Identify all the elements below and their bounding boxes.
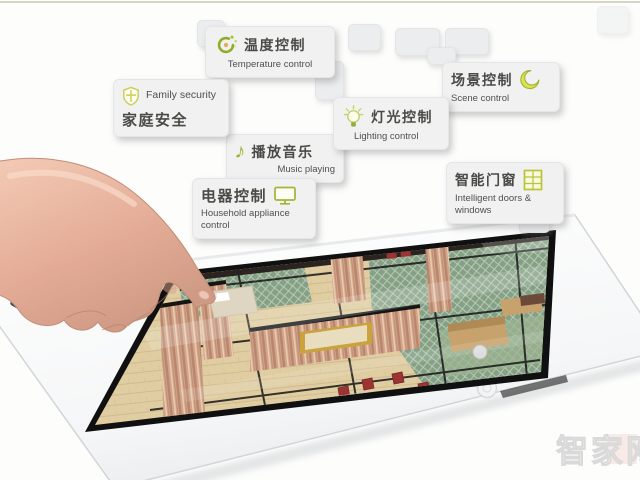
card-temperature-control[interactable]: 温度控制 Temperature control (205, 26, 335, 78)
card-scene-zh: 场景控制 (451, 70, 513, 90)
card-lighting-en: Lighting control (354, 131, 440, 143)
card-scene-en: Scene control (451, 93, 551, 105)
card-family-en: Family security (146, 89, 216, 102)
card-family-zh: 家庭安全 (122, 109, 220, 130)
light-bulb-icon (342, 104, 365, 129)
card-lighting-control[interactable]: 灯光控制 Lighting control (333, 97, 449, 150)
moon-icon (519, 69, 541, 91)
card-household-appliance-control[interactable]: 电器控制 Household appliance control (192, 178, 316, 239)
card-scene-row: 场景控制 (451, 69, 551, 91)
placeholder-card (348, 24, 381, 51)
window-icon (523, 169, 543, 191)
card-appliance-en: Household appliance control (201, 208, 307, 232)
card-music-en: Music playing (235, 164, 335, 176)
card-temperature-row: 温度控制 (214, 33, 326, 57)
card-music-row: ♪ 播放音乐 (235, 141, 335, 162)
card-intelligent-doors-windows[interactable]: 智能门窗 Intelligent doors & windows (446, 162, 564, 224)
watermark-text: 智家网 (556, 433, 640, 469)
card-doors-zh: 智能门窗 (455, 170, 517, 190)
card-doors-en: Intelligent doors & windows (455, 193, 555, 217)
watermark: 智家网 (556, 433, 640, 469)
card-temperature-en: Temperature control (214, 59, 326, 71)
card-music-playing[interactable]: ♪ 播放音乐 Music playing (226, 134, 344, 183)
stage: 智家网 温度控制 Temperature control (0, 0, 640, 480)
card-temperature-zh: 温度控制 (244, 35, 306, 55)
card-family-row: Family security (122, 86, 220, 106)
card-doors-row: 智能门窗 (455, 169, 555, 191)
card-scene-control[interactable]: 场景控制 Scene control (442, 62, 560, 112)
placeholder-card (597, 6, 629, 34)
shield-cross-icon (122, 86, 140, 106)
card-lighting-row: 灯光控制 (342, 104, 440, 129)
sun-swirl-icon (214, 33, 238, 57)
card-family-security[interactable]: Family security 家庭安全 (113, 79, 229, 137)
card-appliance-zh: 电器控制 (201, 185, 267, 206)
music-note-icon: ♪ (234, 140, 247, 162)
card-appliance-row: 电器控制 (201, 185, 307, 206)
tv-monitor-icon (273, 186, 297, 206)
card-music-zh: 播放音乐 (252, 142, 314, 162)
card-lighting-zh: 灯光控制 (371, 107, 433, 127)
